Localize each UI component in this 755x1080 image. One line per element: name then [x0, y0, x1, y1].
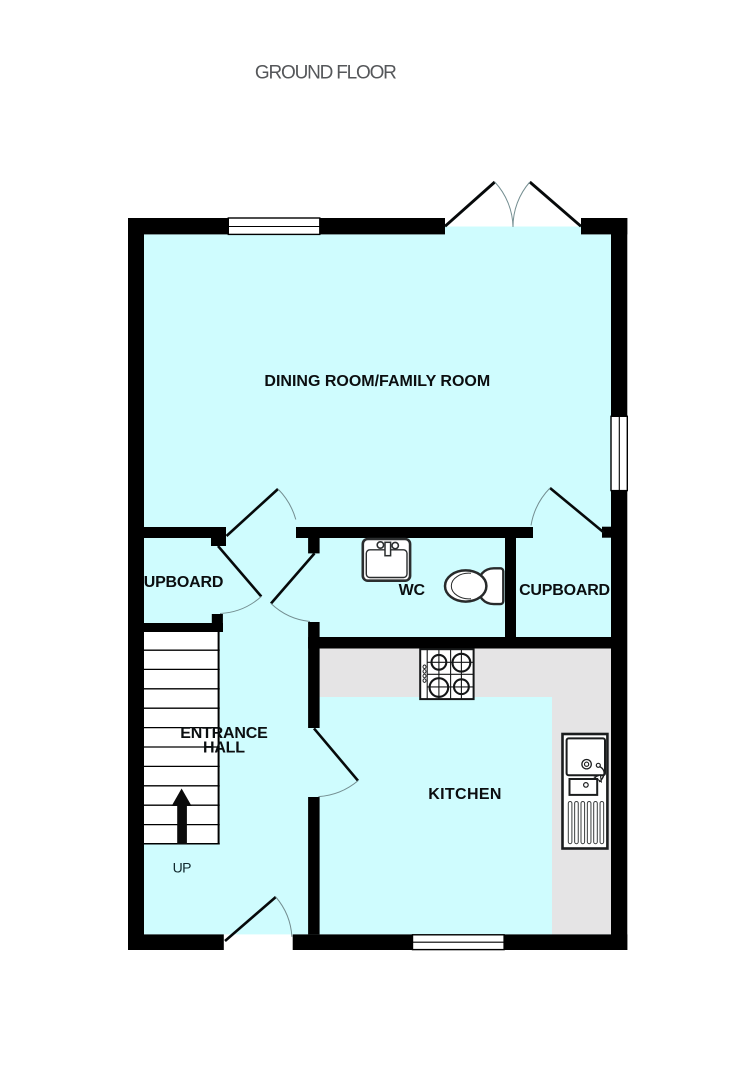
svg-text:CUPBOARD: CUPBOARD — [519, 582, 610, 599]
svg-text:KITCHEN: KITCHEN — [428, 786, 502, 803]
svg-text:HALL: HALL — [203, 739, 245, 756]
svg-text:UP: UP — [173, 859, 192, 875]
svg-text:WC: WC — [399, 582, 426, 599]
svg-text:DINING ROOM/FAMILY ROOM: DINING ROOM/FAMILY ROOM — [264, 373, 490, 390]
svg-text:CUPBOARD: CUPBOARD — [132, 574, 223, 591]
svg-text:GROUND FLOOR: GROUND FLOOR — [255, 63, 396, 84]
